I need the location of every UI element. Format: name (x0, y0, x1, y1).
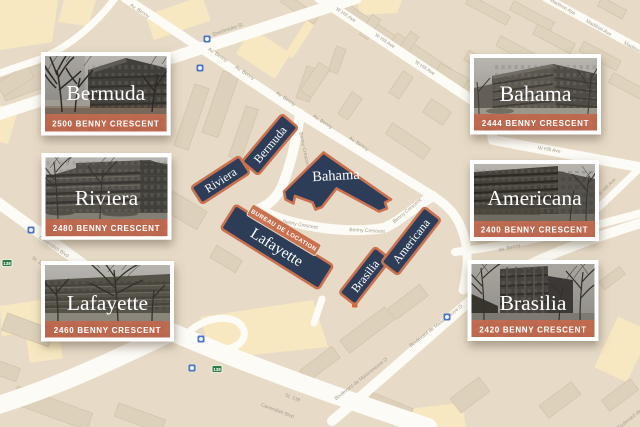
svg-text:138: 138 (3, 261, 11, 266)
svg-text:Bermuda: Bermuda (66, 81, 145, 105)
svg-text:2500 BENNY CRESCENT: 2500 BENNY CRESCENT (52, 119, 159, 128)
svg-text:Lafayette: Lafayette (67, 291, 148, 315)
svg-text:Brasilia: Brasilia (500, 291, 567, 315)
svg-text:2444 BENNY CRESCENT: 2444 BENNY CRESCENT (482, 119, 589, 128)
svg-text:Bahama: Bahama (312, 167, 361, 185)
svg-text:138: 138 (213, 367, 221, 372)
svg-text:Americana: Americana (487, 186, 582, 210)
svg-text:2400 BENNY CRESCENT: 2400 BENNY CRESCENT (481, 226, 588, 235)
svg-text:Bahama: Bahama (499, 81, 571, 106)
svg-text:2480 BENNY CRESCENT: 2480 BENNY CRESCENT (53, 224, 160, 233)
svg-text:2460 BENNY CRESCENT: 2460 BENNY CRESCENT (54, 326, 161, 335)
svg-text:2420 BENNY CRESCENT: 2420 BENNY CRESCENT (479, 325, 586, 334)
svg-text:Riviera: Riviera (75, 186, 139, 210)
